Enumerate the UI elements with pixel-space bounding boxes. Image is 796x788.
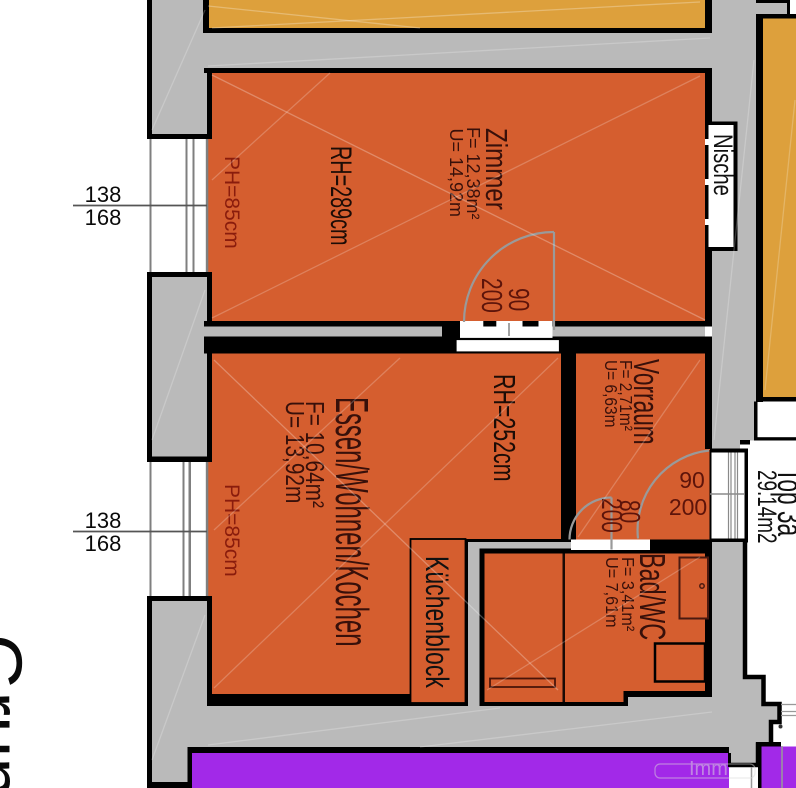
svg-text:Grundriss: Grundriss [0,634,37,788]
svg-text:U= 13,92m: U= 13,92m [280,401,309,503]
svg-text:Zimmer: Zimmer [479,128,514,210]
svg-text:Nische: Nische [707,134,738,196]
svg-text:168: 168 [85,205,122,230]
svg-text:168: 168 [85,531,122,556]
svg-text:138: 138 [85,182,122,207]
svg-text:U= 6,63m: U= 6,63m [601,360,621,427]
svg-text:200: 200 [595,498,627,533]
svg-text:Küchenblock: Küchenblock [419,556,455,688]
svg-text:U= 14,92m: U= 14,92m [446,129,466,218]
svg-text:RH=289cm: RH=289cm [324,146,357,246]
svg-text:200: 200 [475,278,507,313]
svg-text:138: 138 [85,508,122,533]
svg-text:Top 3a: Top 3a [770,468,796,536]
svg-text:200: 200 [669,494,707,520]
svg-text:90: 90 [679,467,705,493]
svg-text:PH=85cm: PH=85cm [220,484,243,577]
svg-text:Essen/Wohnen/Kochen: Essen/Wohnen/Kochen [326,397,377,647]
svg-text:RH=252cm: RH=252cm [487,374,522,482]
svg-text:Imm: Imm [689,758,728,780]
